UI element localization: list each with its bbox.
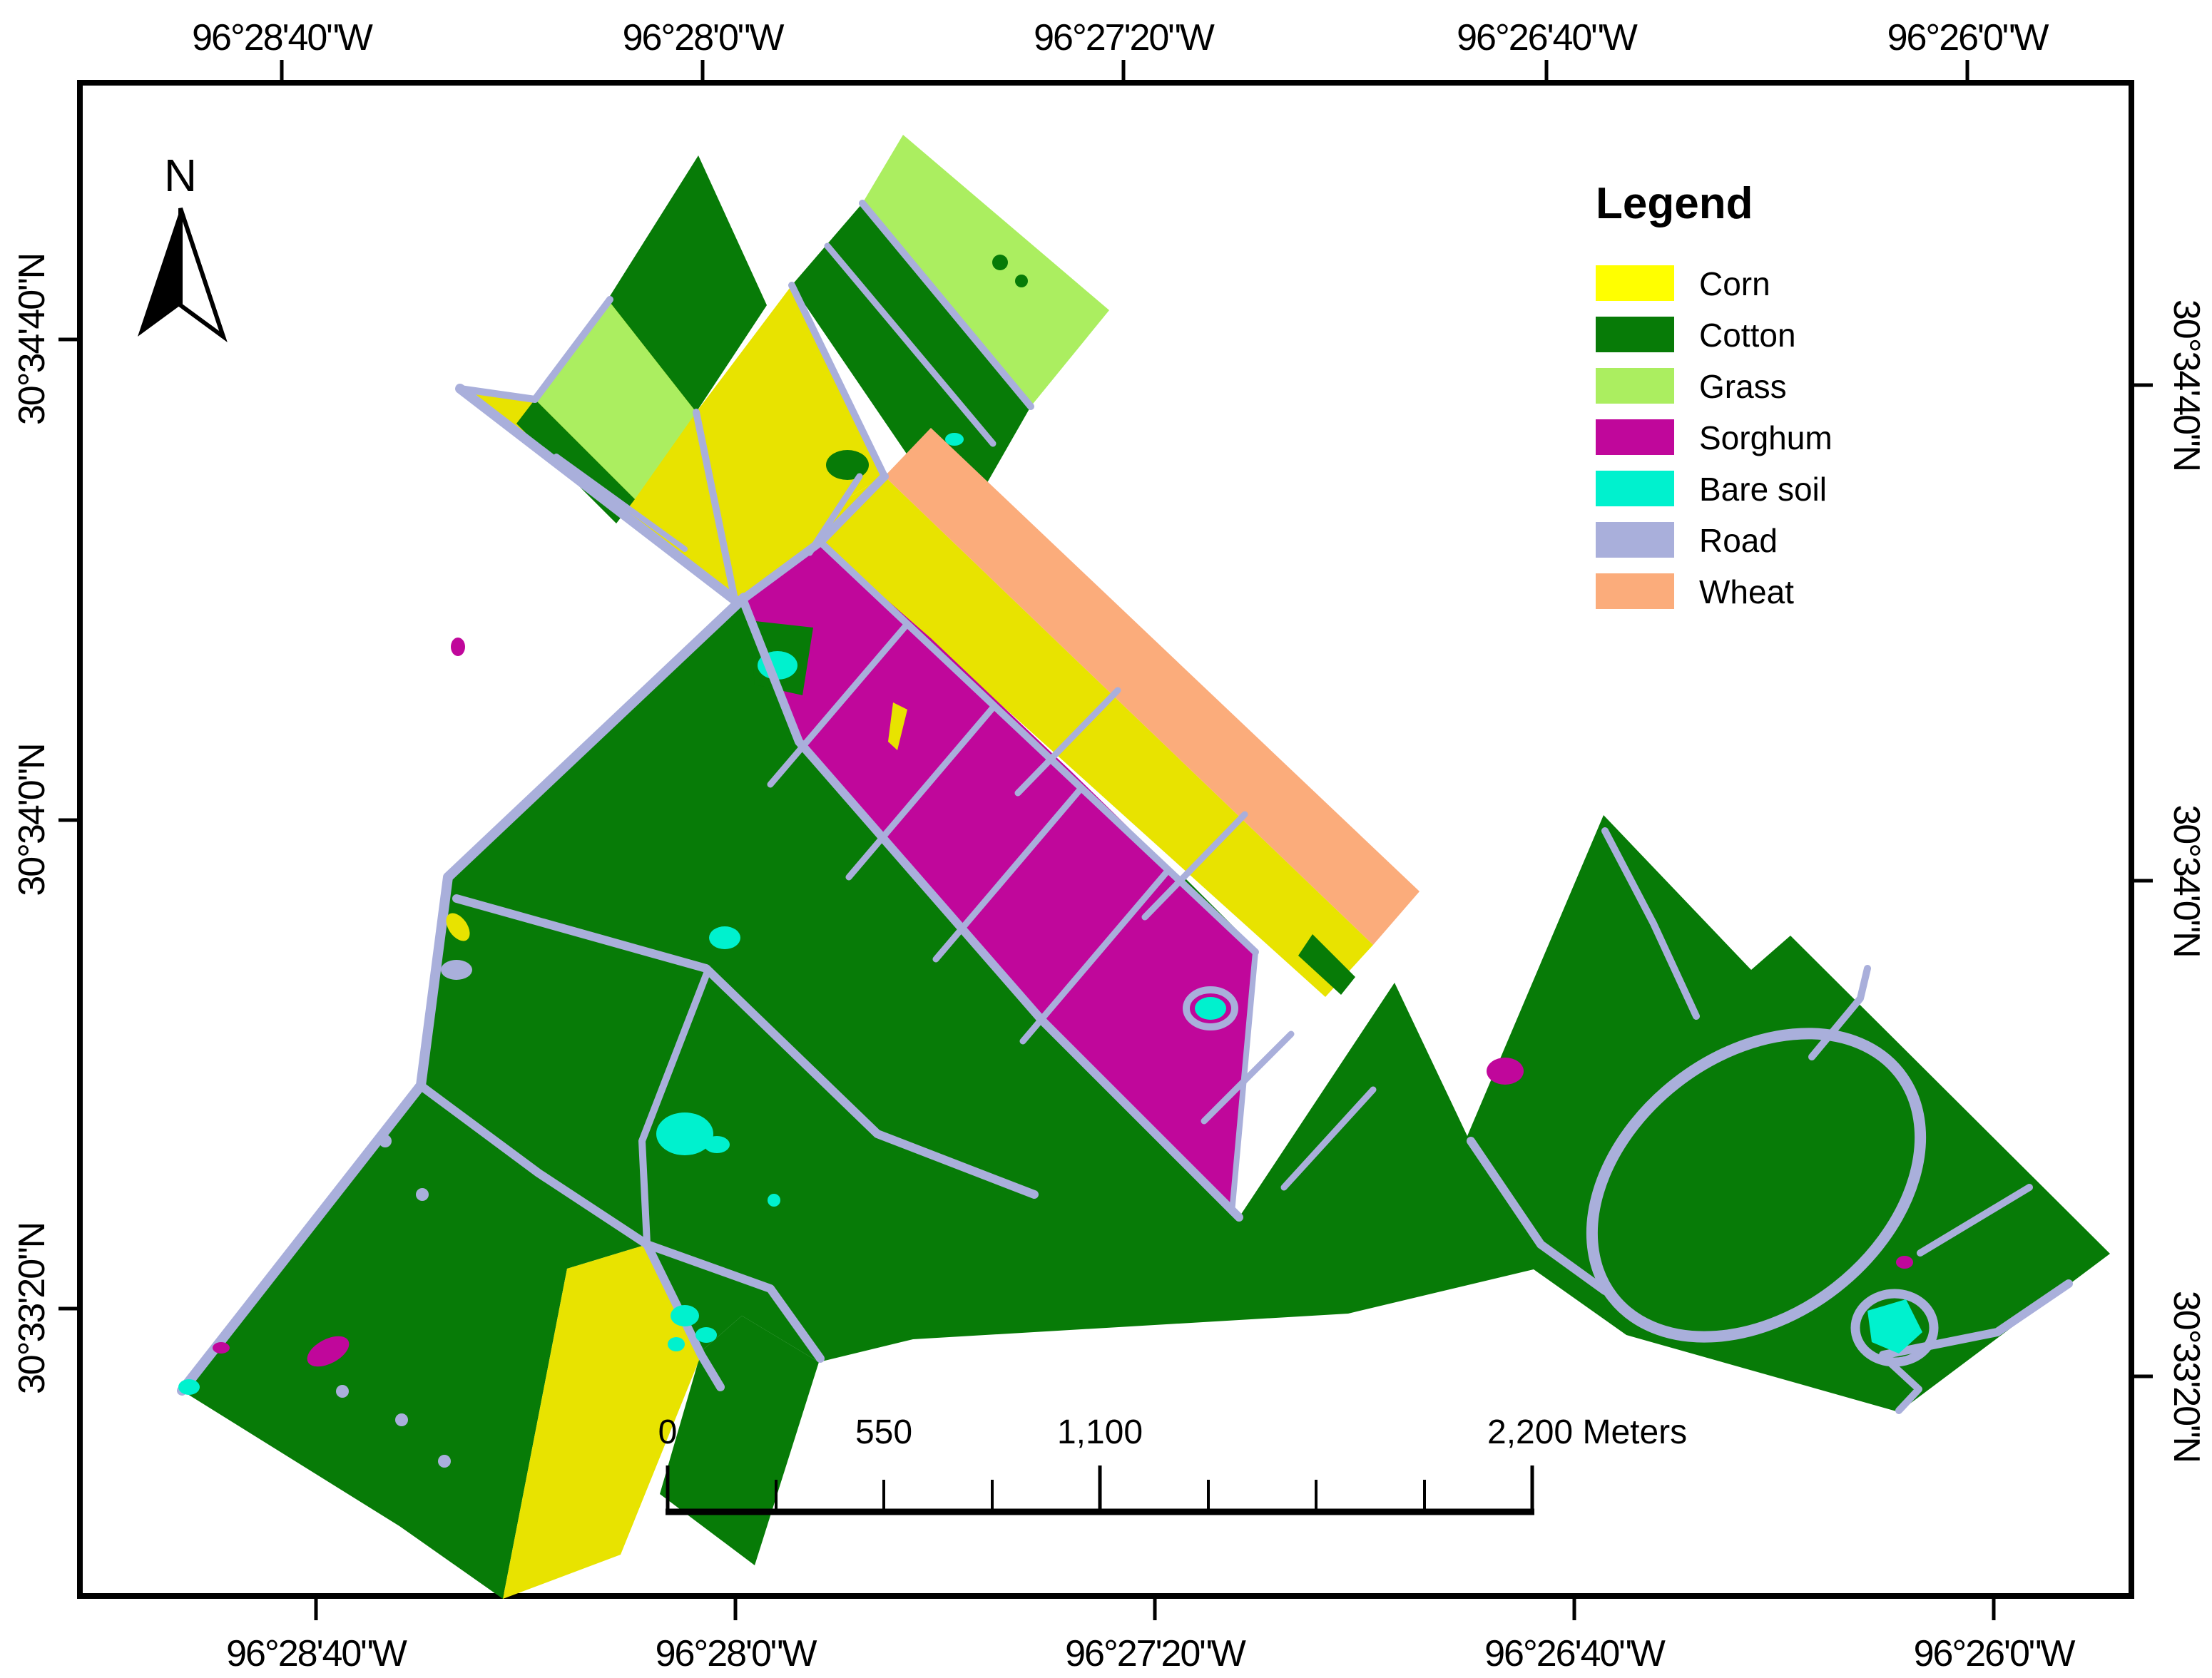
map-figure-page: { "figure": { "kind": "land-cover-classi… <box>0 0 2212 1678</box>
legend-label-road: Road <box>1699 522 1778 559</box>
axis-label-right: 30°33'20"N <box>2166 1291 2207 1462</box>
axis-label-left: 30°33'20"N <box>11 1223 53 1394</box>
classification-map-figure: N Legend Corn Cotton Grass Sorghum Bare … <box>0 0 2212 1678</box>
patch-bare-soil <box>668 1337 685 1351</box>
bottom-ticks <box>316 1596 1994 1620</box>
road-spot <box>395 1413 408 1426</box>
road-spot <box>441 960 472 980</box>
patch-bare-soil <box>768 1194 780 1207</box>
patch-bare-soil <box>671 1305 699 1326</box>
legend-label-wheat: Wheat <box>1699 573 1794 610</box>
axis-label-top: 96°28'0"W <box>623 17 785 58</box>
legend-label-sorghum: Sorghum <box>1699 419 1833 456</box>
axis-label-bottom: 96°27'20"W <box>1065 1633 1246 1674</box>
patch-bare-soil <box>695 1327 717 1343</box>
legend-label-grass: Grass <box>1699 368 1787 405</box>
patch-bare-soil <box>178 1379 200 1395</box>
road-spot <box>416 1188 429 1201</box>
right-ticks <box>2131 385 2153 1376</box>
axis-label-left: 30°34'40"N <box>11 254 53 425</box>
legend-label-corn: Corn <box>1699 265 1770 302</box>
axis-label-top: 96°26'40"W <box>1457 17 1638 58</box>
legend-swatch-cotton <box>1596 317 1674 352</box>
scale-label-2200-meters: 2,200 Meters <box>1487 1413 1687 1451</box>
legend-label-cotton: Cotton <box>1699 317 1796 354</box>
legend-swatch-grass <box>1596 368 1674 404</box>
patch-bare-soil <box>709 926 740 949</box>
legend-swatch-wheat <box>1596 573 1674 609</box>
axis-label-right: 30°34'40"N <box>2166 300 2207 471</box>
road-spot <box>336 1385 349 1398</box>
legend-title: Legend <box>1596 179 1753 228</box>
grass-cotton-dot <box>992 255 1008 270</box>
north-arrow-label: N <box>164 150 197 201</box>
scale-label-0: 0 <box>658 1413 678 1451</box>
patch-sorghum <box>1487 1058 1524 1085</box>
scale-label-1100: 1,100 <box>1057 1413 1143 1451</box>
scale-label-550: 550 <box>855 1413 912 1451</box>
axis-label-right: 30°34'0"N <box>2166 804 2207 956</box>
axis-label-left: 30°34'0"N <box>11 744 53 896</box>
legend-swatch-bare-soil <box>1596 471 1674 506</box>
grass-cotton-dot <box>1015 275 1028 287</box>
legend-swatch-sorghum <box>1596 419 1674 455</box>
left-ticks <box>58 339 80 1309</box>
patch-bare-soil <box>656 1112 713 1155</box>
patch-sorghum <box>213 1342 230 1354</box>
legend-swatch-road <box>1596 522 1674 558</box>
axis-label-bottom: 96°28'0"W <box>656 1633 817 1674</box>
patch-sorghum <box>1896 1256 1913 1269</box>
patch-bare-soil <box>704 1136 730 1153</box>
road-spot <box>438 1455 451 1468</box>
axis-label-top: 96°27'20"W <box>1034 17 1215 58</box>
axis-label-top: 96°26'0"W <box>1887 17 2049 58</box>
legend-label-bare-soil: Bare soil <box>1699 471 1827 508</box>
top-ticks <box>282 60 1967 83</box>
patch-bare-soil <box>1195 997 1226 1020</box>
axis-label-bottom: 96°28'40"W <box>226 1633 407 1674</box>
axis-label-bottom: 96°26'40"W <box>1484 1633 1666 1674</box>
road-spot <box>379 1135 392 1147</box>
patch-bare-soil <box>945 433 964 446</box>
axis-label-top: 96°28'40"W <box>192 17 373 58</box>
legend-swatch-corn <box>1596 265 1674 301</box>
axis-label-bottom: 96°26'0"W <box>1914 1633 2076 1674</box>
patch-sorghum <box>451 638 465 656</box>
